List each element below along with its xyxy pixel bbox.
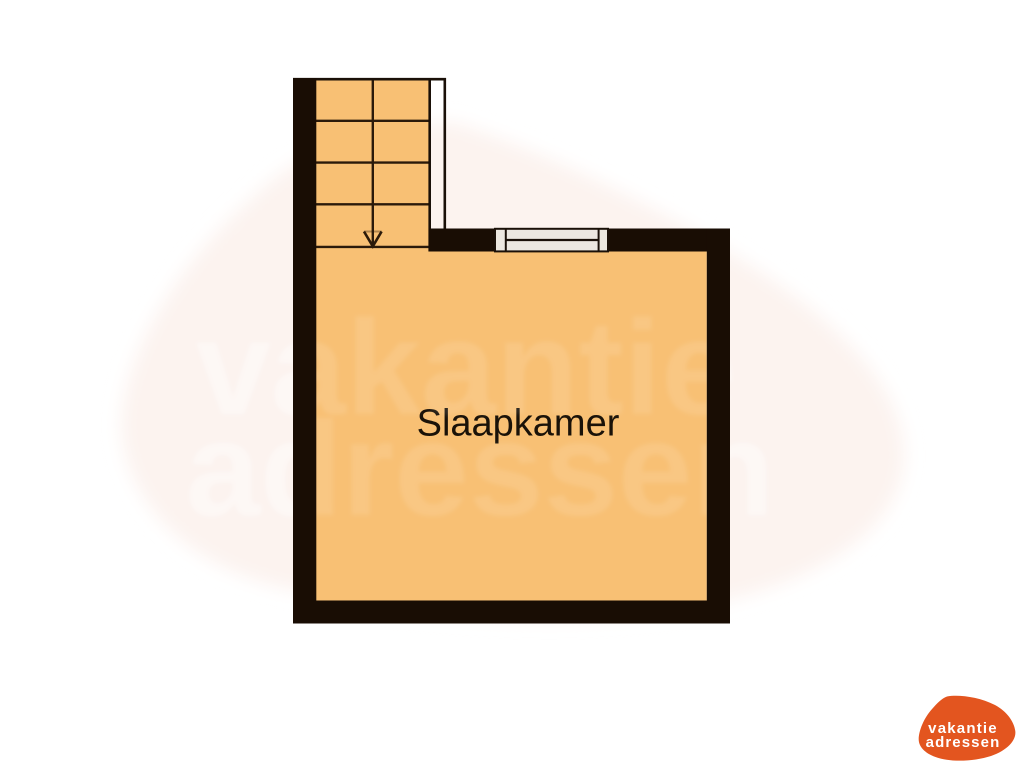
- svg-text:adressen: adressen: [926, 734, 1001, 751]
- svg-text:adressen: adressen: [186, 395, 774, 544]
